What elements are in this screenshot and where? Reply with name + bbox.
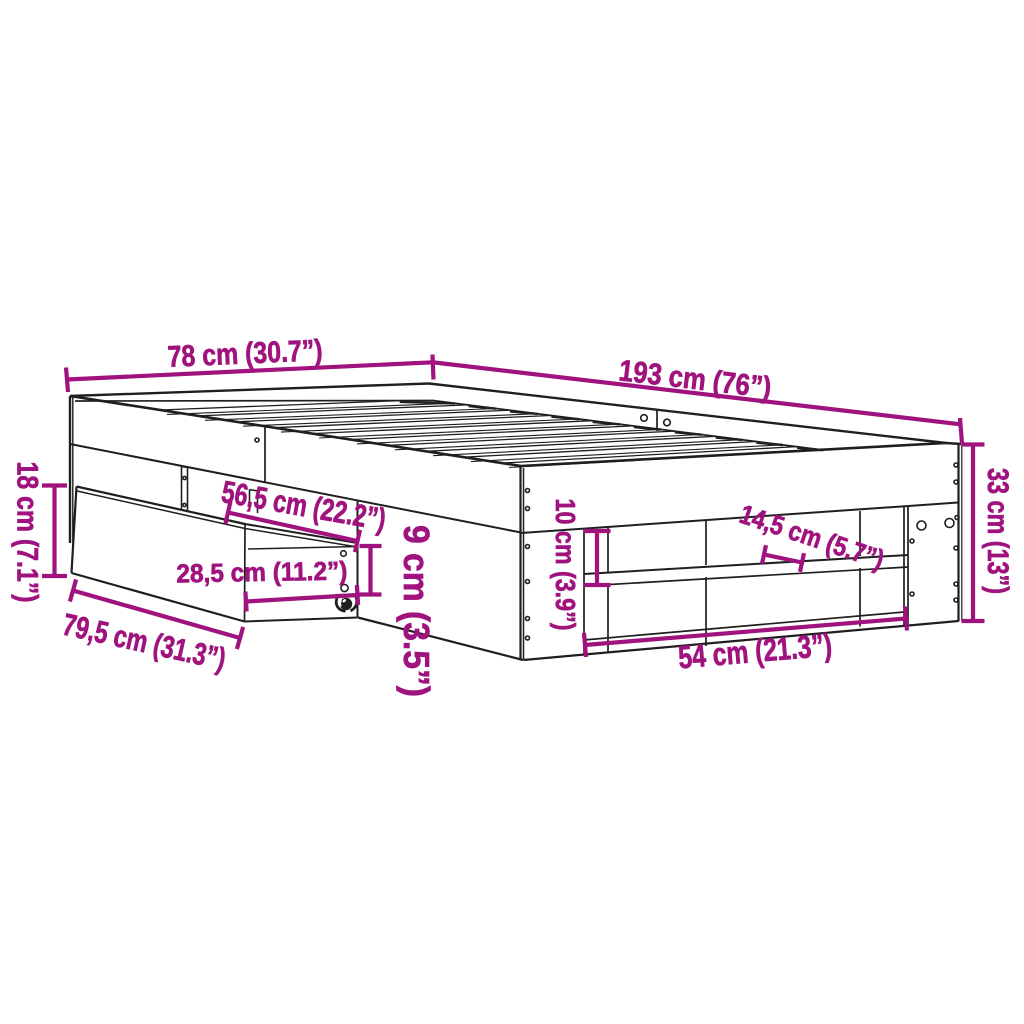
- svg-text:9 cm (3.5”): 9 cm (3.5”): [396, 525, 437, 697]
- svg-text:18 cm (7.1”): 18 cm (7.1”): [11, 462, 44, 603]
- svg-text:28,5 cm (11.2”): 28,5 cm (11.2”): [176, 556, 347, 589]
- svg-text:33 cm (13”): 33 cm (13”): [981, 468, 1014, 594]
- svg-text:78 cm (30.7”): 78 cm (30.7”): [167, 334, 323, 374]
- svg-text:10 cm (3.9”): 10 cm (3.9”): [550, 499, 581, 631]
